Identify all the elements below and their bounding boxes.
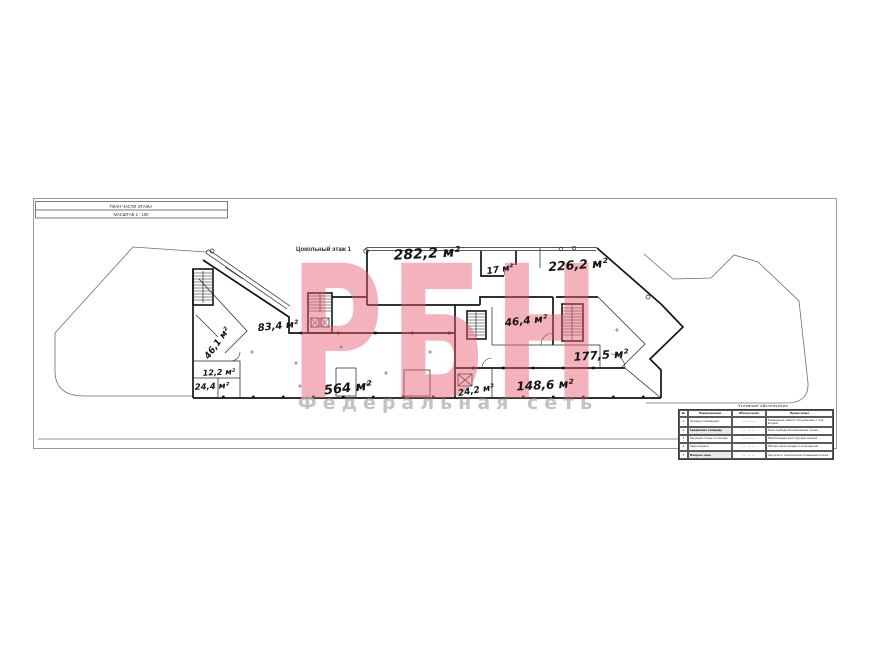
legend-row-name: Сдаваемая площадь <box>688 427 732 435</box>
legend-row-note: Санузлы и технические помещения этажа <box>766 451 833 459</box>
legend-header-num: № <box>679 410 688 417</box>
floor-label: Цокольный этаж 1 <box>296 246 352 253</box>
legend-row-mark: — — — <box>732 443 766 451</box>
legend-grid: № Наименование Обозначение Примечание 1 … <box>678 409 834 460</box>
legend-row-mark: ———— <box>732 435 766 443</box>
legend-row-note: Лёгкие перегородки и ограждения <box>766 443 833 451</box>
legend-row-mark: — — — <box>732 427 766 435</box>
room-area-12: 12,2 м² <box>203 367 236 378</box>
legend-row-name: Граница помещения <box>688 417 732 426</box>
legend-row-num: 3 <box>679 435 688 443</box>
legend-row-name: Перегородки <box>688 443 732 451</box>
room-area-24-4: 24,4 м² <box>195 381 230 393</box>
legend-row-mark: ———— <box>732 417 766 426</box>
legend-row-num: 4 <box>679 443 688 451</box>
legend-row-name: Мокрые зоны <box>688 451 732 459</box>
legend-row-note: Капитальные конструкции здания <box>766 435 833 443</box>
legend-row-num: 1 <box>679 417 688 426</box>
legend-title: Условные обозначения <box>692 404 834 408</box>
legend-row-note: Зона свободной планировки этажа <box>766 427 833 435</box>
floor-plan-document: ПЛАН ЧАСТИ ЭТАЖА МАСШТАБ 1 : 100 <box>0 0 870 652</box>
floor-plan-drawing: ПЛАН ЧАСТИ ЭТАЖА МАСШТАБ 1 : 100 <box>0 0 870 652</box>
legend-row-num: 5 <box>679 451 688 459</box>
legend-header-name: Наименование <box>688 410 732 417</box>
title-block-line1: ПЛАН ЧАСТИ ЭТАЖА <box>110 204 153 209</box>
legend-row-num: 2 <box>679 427 688 435</box>
legend-row-note: Помещение общего пользования с отд. вход… <box>766 417 833 426</box>
legend-table: Условные обозначения № Наименование Обоз… <box>678 404 834 460</box>
legend-header-mark: Обозначение <box>732 410 766 417</box>
legend-row-mark: — — — <box>732 451 766 459</box>
title-block-line2: МАСШТАБ 1 : 100 <box>114 212 150 217</box>
legend-header-note: Примечание <box>766 410 833 417</box>
legend-row-name: Несущие стены и колонны <box>688 435 732 443</box>
